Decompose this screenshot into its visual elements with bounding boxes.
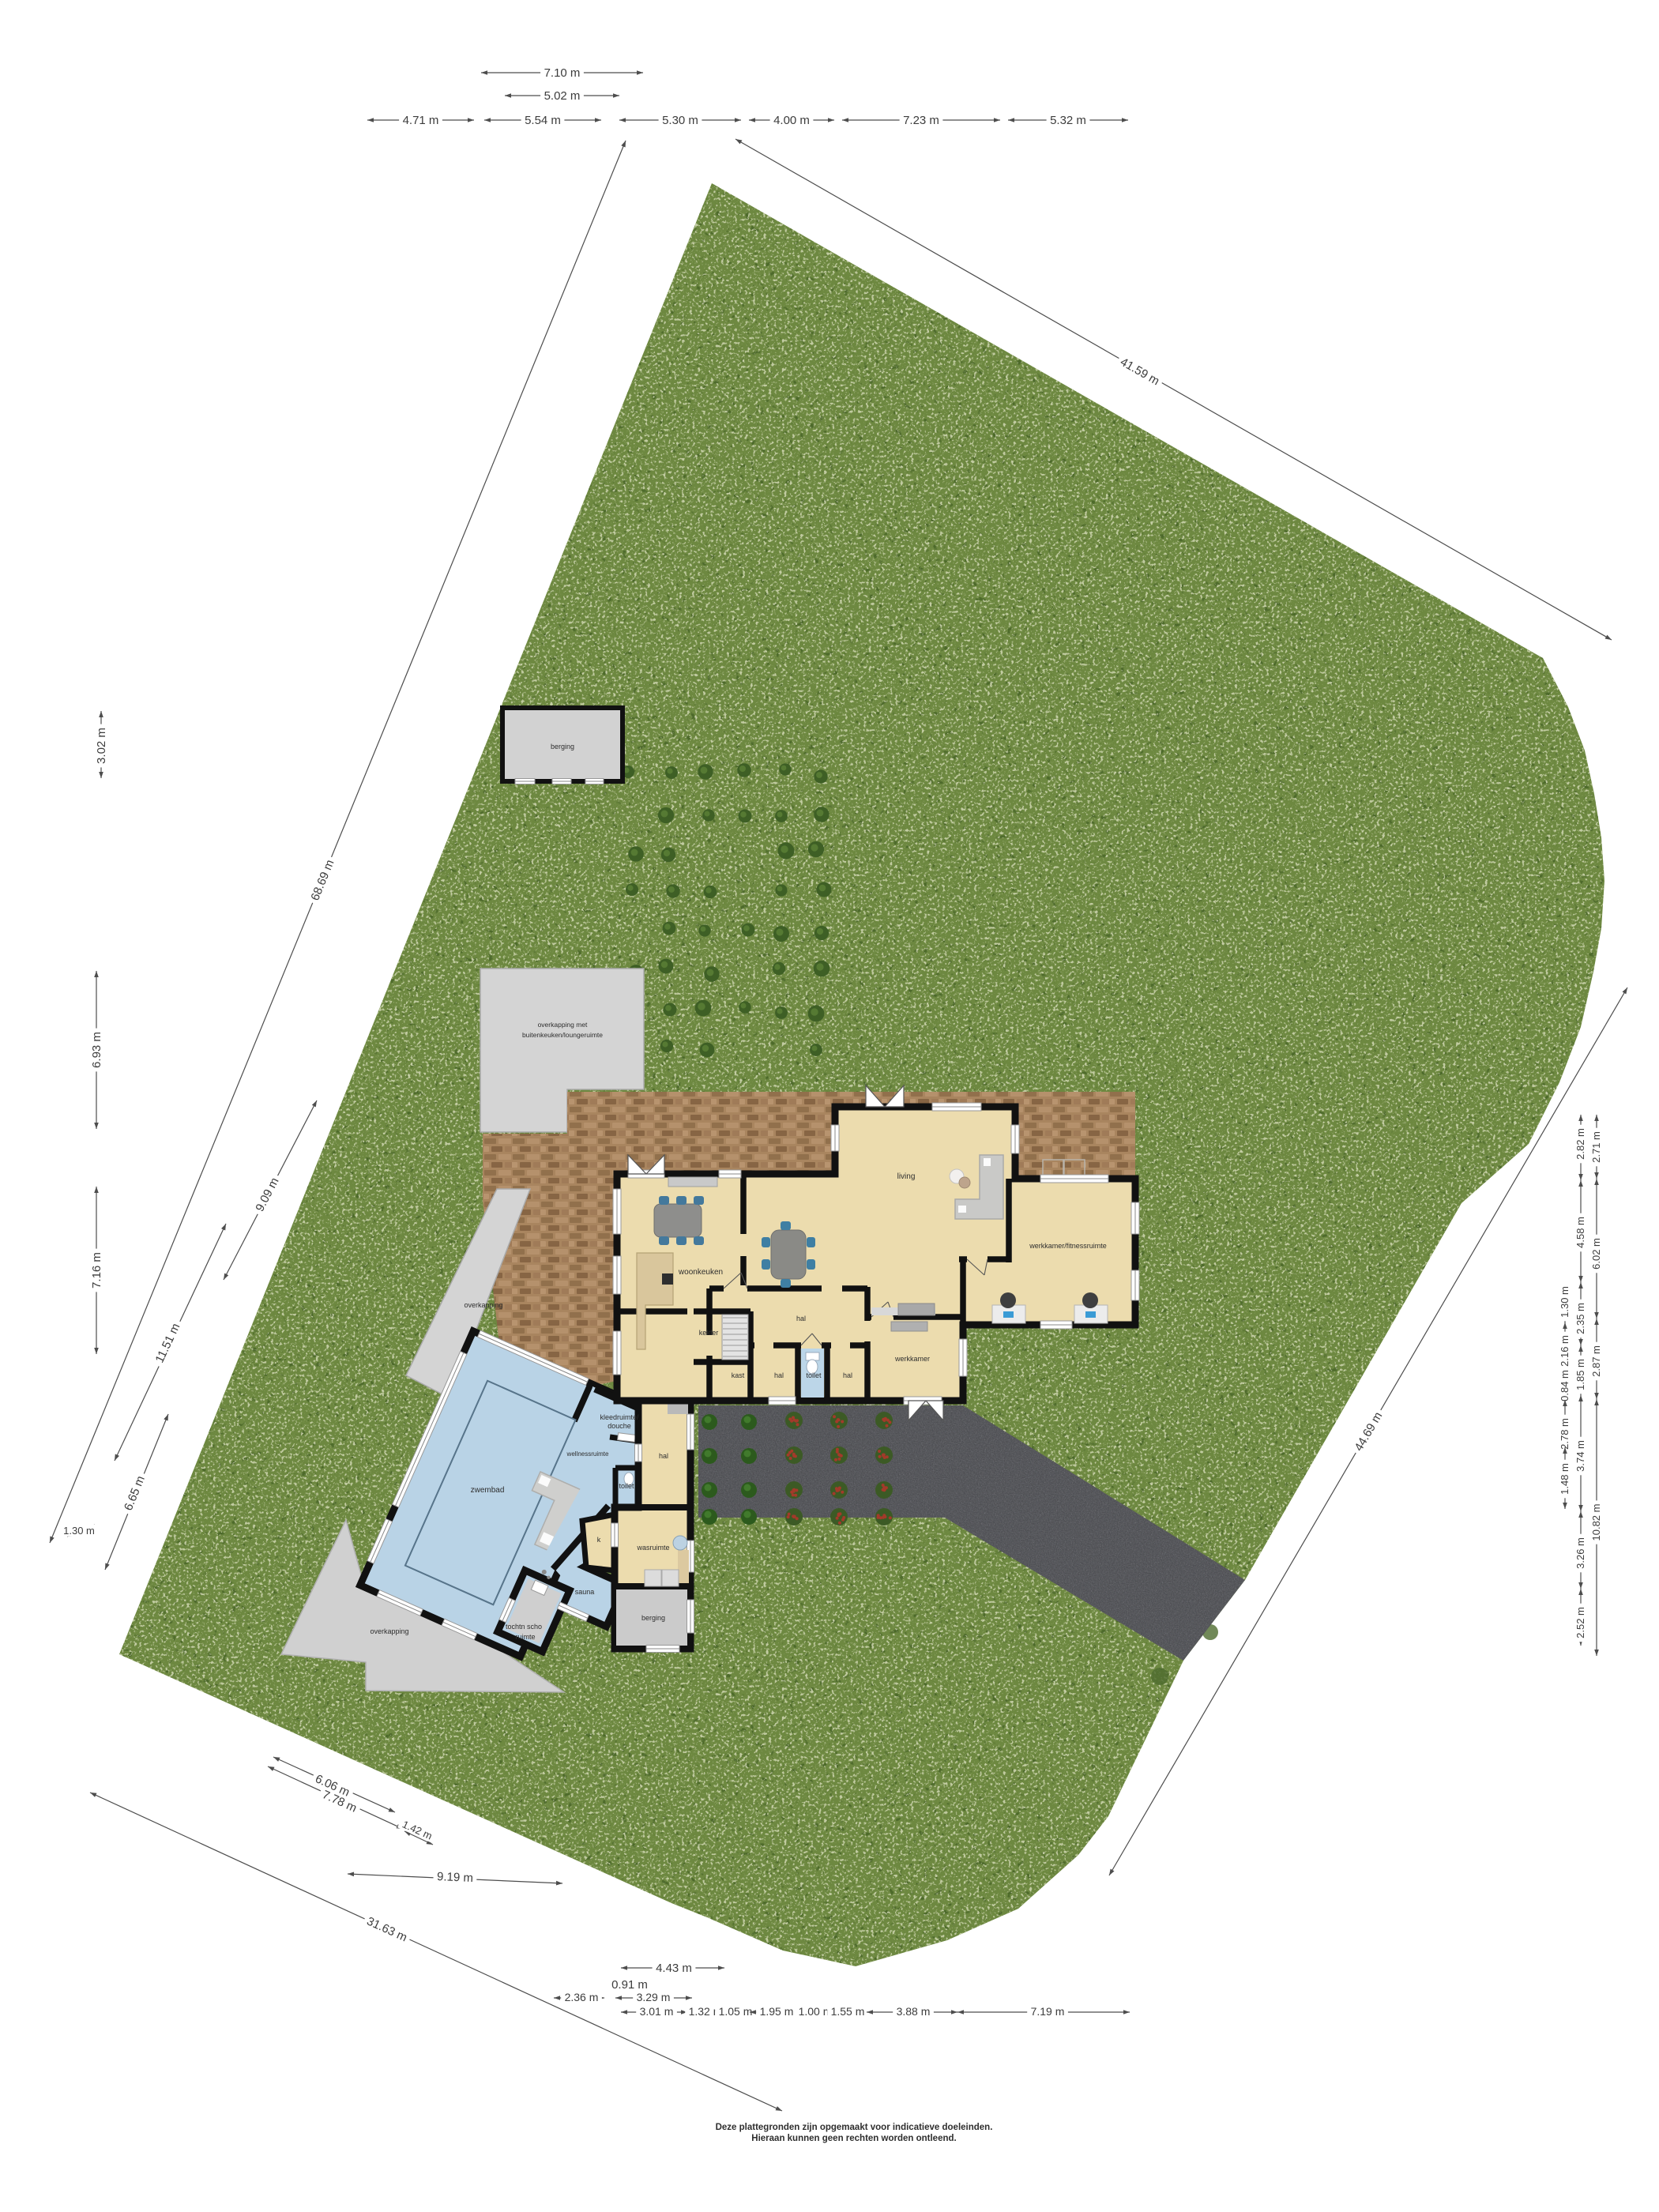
svg-text:sauna: sauna bbox=[575, 1588, 595, 1596]
svg-text:overkapping: overkapping bbox=[464, 1301, 502, 1309]
svg-text:3.02 m: 3.02 m bbox=[95, 728, 108, 764]
svg-text:7.19 m: 7.19 m bbox=[1031, 2005, 1065, 2018]
svg-text:overkapping: overkapping bbox=[370, 1627, 408, 1635]
svg-text:1.95 m: 1.95 m bbox=[760, 2005, 794, 2018]
svg-text:2.52 m: 2.52 m bbox=[1574, 1607, 1586, 1638]
svg-text:hal: hal bbox=[774, 1371, 784, 1379]
svg-text:living: living bbox=[897, 1172, 916, 1181]
svg-text:7.23 m: 7.23 m bbox=[903, 114, 939, 127]
svg-text:tochtn scho: tochtn scho bbox=[506, 1623, 542, 1631]
svg-text:toilet: toilet bbox=[806, 1371, 822, 1379]
svg-text:1.30 m: 1.30 m bbox=[63, 1525, 95, 1537]
svg-text:douche: douche bbox=[608, 1422, 631, 1430]
svg-text:woonkeuken: woonkeuken bbox=[678, 1268, 723, 1277]
svg-text:0.91 m: 0.91 m bbox=[611, 1978, 648, 1992]
svg-text:2.82 m: 2.82 m bbox=[1574, 1128, 1586, 1160]
svg-text:hal: hal bbox=[843, 1371, 852, 1379]
svg-text:werkkamer: werkkamer bbox=[894, 1355, 930, 1363]
svg-text:2.71 m: 2.71 m bbox=[1590, 1131, 1602, 1163]
svg-text:7.16 m: 7.16 m bbox=[90, 1252, 103, 1288]
svg-text:k: k bbox=[597, 1536, 601, 1544]
svg-text:2.35 m: 2.35 m bbox=[1574, 1303, 1586, 1334]
svg-text:buitenkeuken/loungeruimte: buitenkeuken/loungeruimte bbox=[522, 1031, 603, 1039]
svg-text:4.43 m: 4.43 m bbox=[656, 1962, 692, 1975]
svg-text:3.29 m: 3.29 m bbox=[637, 1991, 671, 2003]
svg-text:2.36 m: 2.36 m bbox=[565, 1991, 599, 2003]
svg-text:4.58 m: 4.58 m bbox=[1574, 1217, 1586, 1248]
svg-text:hal: hal bbox=[796, 1315, 806, 1322]
svg-text:hal: hal bbox=[659, 1452, 668, 1460]
svg-text:2.16 m: 2.16 m bbox=[1559, 1335, 1571, 1367]
svg-text:4.00 m: 4.00 m bbox=[773, 114, 810, 127]
svg-text:1.85 m: 1.85 m bbox=[1574, 1359, 1586, 1390]
svg-text:berging: berging bbox=[641, 1614, 665, 1622]
svg-text:kast: kast bbox=[732, 1371, 745, 1379]
svg-text:3.01 m: 3.01 m bbox=[640, 2005, 674, 2018]
svg-text:5.54 m: 5.54 m bbox=[525, 114, 561, 127]
svg-text:wasruimte: wasruimte bbox=[636, 1544, 669, 1552]
svg-text:1.55 m: 1.55 m bbox=[831, 2005, 865, 2018]
svg-text:kelder: kelder bbox=[699, 1329, 719, 1337]
svg-text:4.71 m: 4.71 m bbox=[403, 114, 439, 127]
svg-text:6.93 m: 6.93 m bbox=[90, 1032, 103, 1068]
svg-text:1.48 m: 1.48 m bbox=[1559, 1463, 1571, 1495]
svg-text:2.87 m: 2.87 m bbox=[1590, 1345, 1602, 1377]
svg-text:3.26 m: 3.26 m bbox=[1574, 1537, 1586, 1569]
svg-text:7.10 m: 7.10 m bbox=[544, 66, 581, 80]
svg-text:toilet: toilet bbox=[619, 1482, 634, 1490]
svg-text:6.02 m: 6.02 m bbox=[1590, 1238, 1602, 1270]
svg-text:kleedruimte/: kleedruimte/ bbox=[600, 1413, 639, 1421]
svg-text:Deze plattegronden zijn opgema: Deze plattegronden zijn opgemaakt voor i… bbox=[716, 2123, 993, 2132]
svg-text:Hieraan kunnen geen rechten wo: Hieraan kunnen geen rechten worden ontle… bbox=[751, 2134, 956, 2143]
svg-text:berging: berging bbox=[551, 743, 574, 750]
svg-text:0.84 m: 0.84 m bbox=[1559, 1370, 1571, 1401]
svg-text:5.32 m: 5.32 m bbox=[1050, 114, 1086, 127]
svg-text:5.30 m: 5.30 m bbox=[662, 114, 698, 127]
svg-text:zwembad: zwembad bbox=[471, 1486, 505, 1495]
svg-text:1.05 m: 1.05 m bbox=[719, 2005, 753, 2018]
svg-text:wellnessruimte: wellnessruimte bbox=[566, 1450, 609, 1458]
svg-text:overkapping met: overkapping met bbox=[538, 1021, 588, 1029]
svg-text:1.00 m: 1.00 m bbox=[799, 2005, 833, 2018]
svg-text:ruimte: ruimte bbox=[515, 1633, 535, 1641]
svg-text:10.82 m: 10.82 m bbox=[1590, 1504, 1602, 1541]
svg-text:1.30 m: 1.30 m bbox=[1559, 1286, 1571, 1318]
svg-text:3.88 m: 3.88 m bbox=[897, 2005, 931, 2018]
svg-text:2.78 m: 2.78 m bbox=[1559, 1418, 1571, 1450]
svg-text:3.74 m: 3.74 m bbox=[1574, 1440, 1586, 1472]
svg-text:5.02 m: 5.02 m bbox=[544, 89, 581, 103]
svg-text:9.19 m: 9.19 m bbox=[437, 1870, 474, 1885]
svg-text:werkkamer/fitnessruimte: werkkamer/fitnessruimte bbox=[1029, 1242, 1107, 1250]
